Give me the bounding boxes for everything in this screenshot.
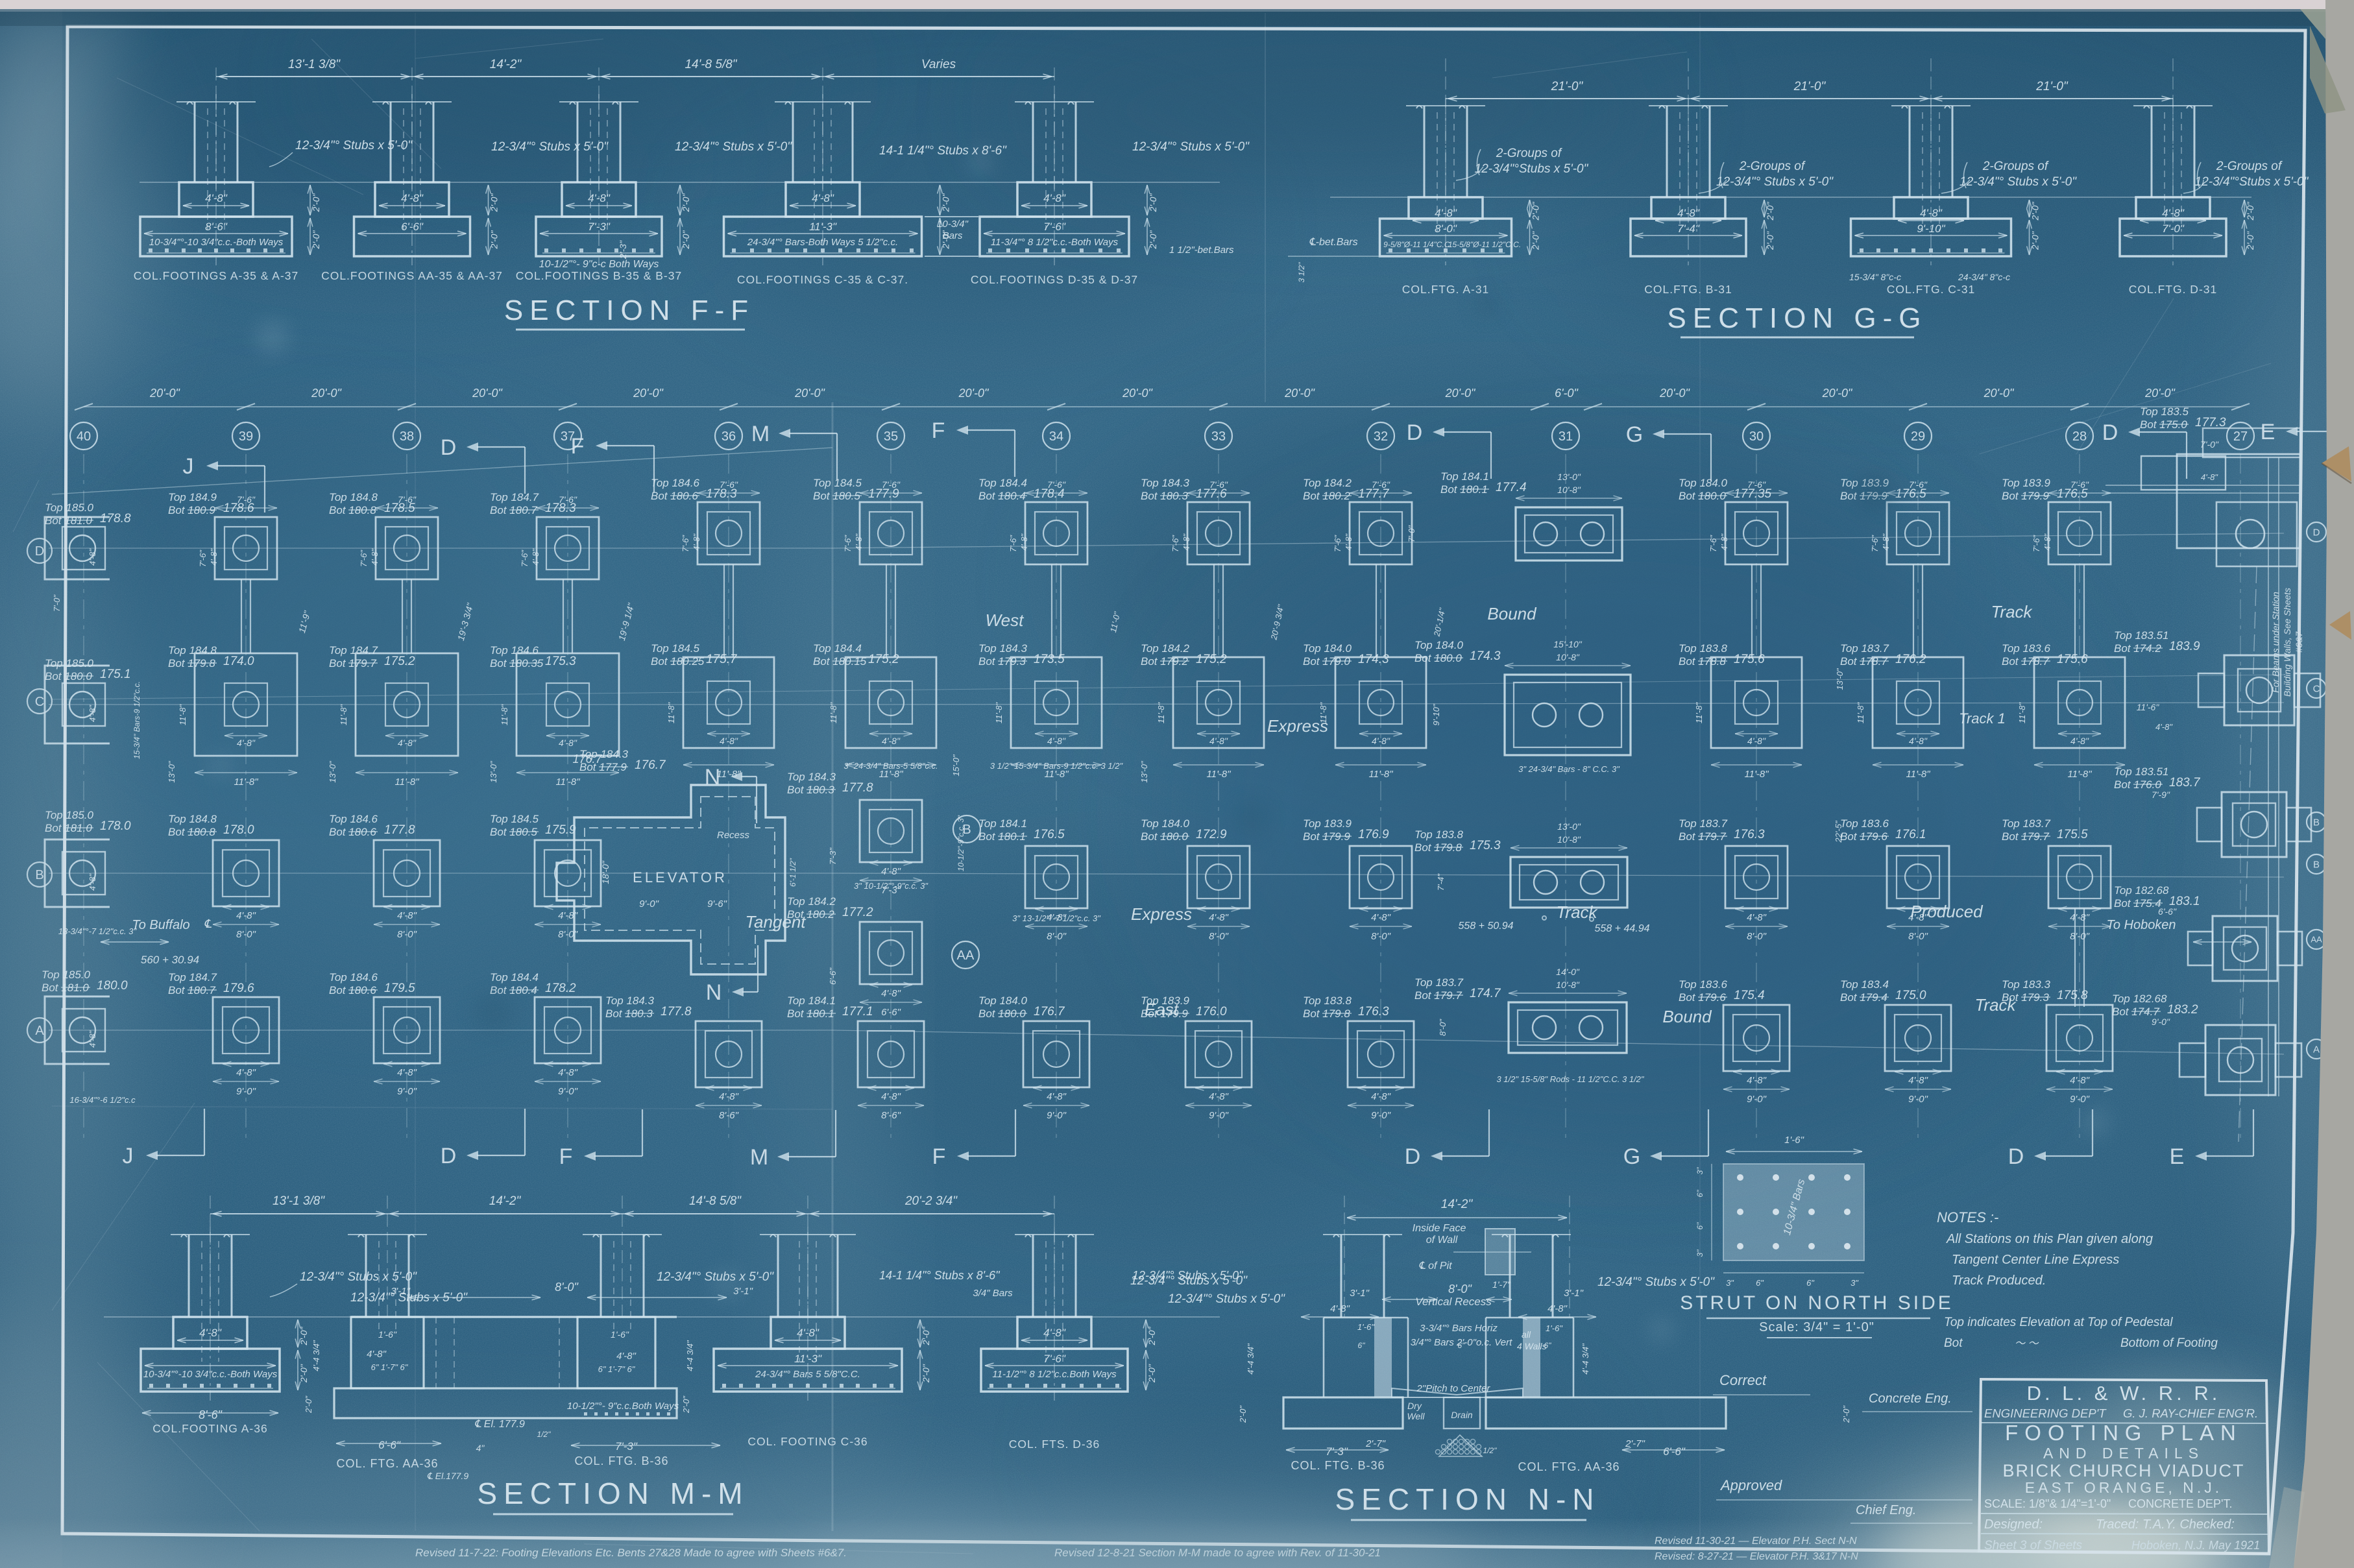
svg-text:F: F	[932, 418, 945, 443]
svg-text:177.35: 177.35	[1734, 487, 1772, 501]
svg-text:28: 28	[2072, 429, 2087, 444]
svg-text:COL.FTG. D-31: COL.FTG. D-31	[2129, 283, 2218, 296]
svg-text:COL.FTG. A-31: COL.FTG. A-31	[1402, 283, 1490, 296]
svg-text:2'-0": 2'-0"	[489, 230, 500, 250]
svg-text:4'-8": 4'-8"	[1371, 1091, 1391, 1102]
svg-text:2'-0": 2'-0"	[304, 1395, 313, 1414]
svg-text:10-1/2"-9"c.c. 3": 10-1/2"-9"c.c. 3"	[956, 815, 965, 871]
svg-text:4 Walls: 4 Walls	[1517, 1341, 1547, 1351]
svg-text:2-Groups of: 2-Groups of	[1496, 147, 1562, 160]
svg-text:Top 183.7: Top 183.7	[1679, 817, 1728, 830]
svg-text:SECTION M-M: SECTION M-M	[477, 1477, 749, 1510]
svg-text:D: D	[441, 1144, 457, 1168]
svg-text:2'-0": 2'-0"	[1147, 1327, 1157, 1346]
svg-text:F: F	[932, 1144, 946, 1169]
svg-text:4'-8": 4'-8"	[1547, 1303, 1568, 1314]
svg-text:8'-0": 8'-0"	[236, 929, 256, 940]
svg-text:2'-0": 2'-0"	[2245, 231, 2255, 250]
svg-text:2-Groups of: 2-Groups of	[2216, 160, 2283, 173]
svg-text:12-3/4"° Stubs x 5'-0": 12-3/4"° Stubs x 5'-0"	[1960, 175, 2077, 189]
svg-text:Well: Well	[1407, 1411, 1426, 1421]
svg-text:176.2: 176.2	[1895, 653, 1926, 666]
svg-text:Top 183.6: Top 183.6	[1840, 817, 1889, 830]
svg-text:SECTION G-G: SECTION G-G	[1668, 302, 1928, 334]
svg-text:4'-8": 4'-8"	[1019, 533, 1029, 551]
svg-text:4'-8": 4'-8"	[1043, 1327, 1066, 1339]
svg-text:12-3/4"°Stubs x 5'-0": 12-3/4"°Stubs x 5'-0"	[1475, 162, 1589, 176]
svg-text:2'-0": 2'-0"	[681, 230, 691, 250]
svg-text:4'-8": 4'-8"	[881, 1091, 901, 1102]
svg-text:Top 183.7: Top 183.7	[1414, 976, 1464, 989]
svg-text:4'-8": 4'-8"	[692, 533, 701, 551]
svg-text:2'-3": 2'-3"	[618, 240, 628, 259]
svg-text:COL.FOOTINGS AA-35 & AA-37: COL.FOOTINGS AA-35 & AA-37	[321, 269, 503, 282]
svg-text:Chief Eng.: Chief Eng.	[1856, 1503, 1916, 1517]
svg-text:4'-8": 4'-8"	[1047, 736, 1066, 746]
svg-text:177.7: 177.7	[1358, 487, 1390, 501]
svg-text:2-Groups of: 2-Groups of	[1739, 160, 1806, 173]
svg-text:32: 32	[1374, 429, 1388, 444]
svg-text:2'-0": 2'-0"	[921, 1364, 931, 1383]
svg-text:Top 184.6: Top 184.6	[329, 813, 378, 825]
svg-text:176.9: 176.9	[1358, 828, 1389, 841]
svg-text:D: D	[1405, 1144, 1421, 1169]
svg-text:4'-8": 4'-8"	[616, 1351, 637, 1362]
svg-text:12-3/4"° Stubs x 5'-0": 12-3/4"° Stubs x 5'-0"	[675, 140, 792, 154]
svg-text:9'-0": 9'-0"	[1747, 1094, 1767, 1105]
svg-text:NOTES :-: NOTES :-	[1937, 1209, 1998, 1225]
svg-text:Top 184.6: Top 184.6	[651, 477, 700, 489]
svg-text:13'-0": 13'-0"	[1557, 821, 1581, 832]
svg-text:Top 183.8: Top 183.8	[1303, 995, 1352, 1007]
svg-text:174.7: 174.7	[1470, 987, 1501, 1000]
svg-text:13'-0": 13'-0"	[167, 760, 176, 783]
svg-text:8'-6": 8'-6"	[881, 1110, 901, 1121]
svg-text:175.2: 175.2	[384, 655, 415, 668]
svg-text:SECTION F-F: SECTION F-F	[504, 295, 755, 326]
svg-text:COL. FOOTING C-36: COL. FOOTING C-36	[747, 1435, 868, 1448]
svg-text:Top 184.5: Top 184.5	[490, 813, 539, 825]
svg-text:Top 184.6: Top 184.6	[490, 644, 539, 657]
svg-text:176.0: 176.0	[1196, 1005, 1227, 1019]
svg-text:N: N	[706, 980, 722, 1005]
svg-text:all: all	[1522, 1329, 1531, 1340]
svg-text:Produced: Produced	[1910, 902, 1984, 921]
svg-text:12-3/4"° Stubs x 5'-0": 12-3/4"° Stubs x 5'-0"	[295, 139, 413, 152]
svg-text:℄: ℄	[204, 917, 212, 930]
svg-text:4'-8": 4'-8"	[588, 192, 611, 204]
svg-text:COL.FTG. B-31: COL.FTG. B-31	[1644, 283, 1732, 296]
svg-text:11'-8": 11'-8"	[1368, 769, 1393, 780]
svg-text:8'-0": 8'-0"	[1448, 1283, 1472, 1296]
svg-text:8'-6": 8'-6"	[205, 221, 228, 233]
svg-text:4'-8": 4'-8"	[719, 1091, 739, 1102]
svg-text:174.3: 174.3	[1358, 653, 1389, 666]
svg-text:179.6: 179.6	[223, 982, 254, 995]
svg-text:4'-4 3/4": 4'-4 3/4"	[311, 1340, 321, 1371]
svg-text:20'-2 3/4": 20'-2 3/4"	[904, 1194, 958, 1208]
svg-text:To Hoboken: To Hoboken	[2106, 918, 2176, 932]
svg-text:24-3/4"° Bars-Both Ways 5 1/2": 24-3/4"° Bars-Both Ways 5 1/2"c.c.	[747, 237, 898, 248]
svg-text:8'-0": 8'-0"	[1908, 931, 1928, 942]
svg-text:38: 38	[400, 429, 414, 444]
svg-text:14'-2": 14'-2"	[490, 58, 522, 71]
svg-text:11'-8": 11'-8"	[1694, 702, 1704, 724]
svg-text:6'-1 1/2": 6'-1 1/2"	[788, 858, 797, 887]
svg-text:11'-3": 11'-3"	[794, 1353, 822, 1365]
svg-text:D: D	[1407, 420, 1423, 445]
svg-text:175.8: 175.8	[2057, 989, 2088, 1002]
svg-text:20'-0": 20'-0"	[1122, 387, 1153, 400]
svg-text:4'-8": 4'-8"	[236, 1067, 256, 1078]
svg-text:6": 6"	[1756, 1278, 1764, 1288]
svg-text:9'-0": 9'-0"	[397, 1086, 417, 1097]
svg-text:8'-0": 8'-0"	[1435, 223, 1457, 235]
svg-text:2'-7": 2'-7"	[1365, 1438, 1386, 1449]
svg-text:6" 1'-7" 6": 6" 1'-7" 6"	[371, 1362, 409, 1372]
svg-text:B: B	[2313, 859, 2320, 870]
svg-text:4'-8": 4'-8"	[2162, 207, 2185, 219]
svg-text:6": 6"	[1695, 1190, 1705, 1198]
svg-text:Top 184.3: Top 184.3	[978, 642, 1028, 655]
svg-text:Top 184.5: Top 184.5	[651, 642, 700, 655]
svg-text:13'-0": 13'-0"	[1139, 760, 1149, 783]
svg-text:ELEVATOR: ELEVATOR	[633, 869, 727, 886]
svg-text:7'-6": 7'-6"	[1171, 535, 1180, 552]
svg-text:14'-2": 14'-2"	[489, 1194, 522, 1208]
svg-text:177.9: 177.9	[868, 487, 899, 501]
svg-text:1/2": 1/2"	[537, 1430, 552, 1439]
svg-text:ENGINEERING DEP'T: ENGINEERING DEP'T	[1984, 1406, 2107, 1420]
svg-text:EAST ORANGE, N.J.: EAST ORANGE, N.J.	[2025, 1479, 2222, 1496]
svg-text:Track: Track	[1974, 995, 2017, 1015]
svg-text:F: F	[571, 434, 585, 459]
svg-text:13'-1 3/8": 13'-1 3/8"	[288, 58, 341, 71]
svg-text:Top 184.8: Top 184.8	[329, 491, 378, 503]
svg-text:8'-0": 8'-0"	[1047, 931, 1067, 942]
svg-text:Bottom of Footing: Bottom of Footing	[2120, 1336, 2218, 1350]
svg-text:3": 3"	[1695, 1167, 1705, 1175]
svg-text:2'-0": 2'-0"	[311, 230, 321, 250]
svg-text:177.8: 177.8	[384, 823, 415, 837]
svg-text:COL.FOOTINGS C-35 & C-37.: COL.FOOTINGS C-35 & C-37.	[737, 273, 908, 286]
svg-text:4'-8": 4'-8"	[199, 1327, 222, 1339]
svg-text:178.5: 178.5	[384, 501, 415, 515]
svg-text:4'-8": 4'-8"	[401, 192, 424, 204]
svg-text:COL.FOOTINGS A-35 & A-37: COL.FOOTINGS A-35 & A-37	[134, 269, 299, 282]
svg-text:Tangent Center Line Express: Tangent Center Line Express	[1952, 1253, 2119, 1267]
svg-text:13'-0": 13'-0"	[489, 760, 498, 783]
svg-text:1/2": 1/2"	[1483, 1446, 1498, 1455]
svg-text:2'-0": 2'-0"	[1148, 193, 1158, 213]
svg-text:183.9: 183.9	[2169, 640, 2200, 653]
svg-text:Top 184.0: Top 184.0	[1303, 642, 1352, 655]
svg-text:B: B	[2313, 817, 2320, 828]
svg-text:4'-8": 4'-8"	[720, 736, 738, 746]
svg-text:178.2: 178.2	[545, 982, 576, 995]
svg-text:176.7: 176.7	[635, 758, 666, 772]
svg-text:4'-8": 4'-8"	[1047, 1091, 1067, 1102]
svg-text:COL.FOOTING A-36: COL.FOOTING A-36	[152, 1422, 267, 1435]
svg-text:11'-8": 11'-8"	[394, 777, 419, 788]
svg-text:9'-10": 9'-10"	[1431, 703, 1441, 726]
svg-text:COL. FTG. AA-36: COL. FTG. AA-36	[1518, 1460, 1620, 1473]
svg-text:2'-0": 2'-0"	[1148, 230, 1158, 250]
svg-text:178.0: 178.0	[100, 819, 131, 833]
svg-text:4'-8": 4'-8"	[1344, 533, 1353, 551]
svg-text:7'-6": 7'-6"	[1008, 535, 1018, 552]
svg-text:Top 183.7: Top 183.7	[2002, 817, 2051, 830]
svg-text:East: East	[1145, 1000, 1180, 1019]
svg-text:4'-8": 4'-8"	[88, 548, 97, 566]
svg-text:G. J. RAY-CHIEF ENG'R.: G. J. RAY-CHIEF ENG'R.	[2123, 1406, 2258, 1420]
svg-text:8'-6": 8'-6"	[199, 1408, 223, 1421]
svg-text:13'-1 3/8": 13'-1 3/8"	[273, 1194, 325, 1208]
svg-text:4'-8": 4'-8"	[237, 738, 256, 748]
svg-text:2'-0": 2'-0"	[681, 1395, 691, 1414]
svg-text:4'-8": 4'-8"	[1908, 1075, 1928, 1086]
svg-text:180.0: 180.0	[97, 979, 128, 993]
svg-text:13'-0": 13'-0"	[328, 760, 337, 783]
svg-text:Top 184.4: Top 184.4	[490, 971, 539, 983]
svg-text:4'-8": 4'-8"	[1677, 207, 1700, 219]
svg-text:12-3/4"° Stubs x 5'-0": 12-3/4"° Stubs x 5'-0"	[300, 1270, 417, 1284]
svg-text:℄ El. 177.9: ℄ El. 177.9	[474, 1419, 525, 1430]
svg-text:21'-0": 21'-0"	[1551, 80, 1584, 93]
svg-text:#6&7: #6&7	[2294, 631, 2304, 653]
svg-text:31: 31	[1559, 429, 1573, 444]
svg-text:M: M	[751, 422, 770, 446]
svg-text:4'-8": 4'-8"	[2155, 722, 2173, 732]
svg-text:Top 183.7: Top 183.7	[1840, 642, 1889, 655]
svg-text:4'-8": 4'-8"	[236, 910, 256, 921]
svg-text:176.5: 176.5	[2057, 487, 2088, 501]
svg-text:9'-0": 9'-0"	[639, 899, 659, 910]
svg-text:COL.FOOTINGS D-35 & D-37: COL.FOOTINGS D-35 & D-37	[971, 273, 1138, 286]
svg-text:175.5: 175.5	[2057, 828, 2088, 841]
svg-text:Vertical Recess: Vertical Recess	[1415, 1296, 1492, 1308]
svg-text:174.0: 174.0	[223, 655, 254, 668]
svg-text:7'-6": 7'-6"	[359, 549, 369, 567]
svg-text:3 1/2": 3 1/2"	[1297, 262, 1306, 283]
svg-text:4'-8": 4'-8"	[1435, 207, 1457, 219]
svg-text:Inside Face: Inside Face	[1413, 1223, 1466, 1234]
svg-text:1'-6": 1'-6"	[1546, 1323, 1563, 1333]
svg-text:10'-8": 10'-8"	[1556, 652, 1580, 662]
svg-text:1'-6": 1'-6"	[1357, 1322, 1375, 1332]
svg-text:Drain: Drain	[1451, 1410, 1473, 1420]
svg-text:Tangent: Tangent	[745, 912, 807, 932]
svg-text:6'-6": 6'-6"	[401, 221, 424, 233]
svg-text:30: 30	[1749, 429, 1764, 444]
svg-text:16-3/4"°-6 1/2"c.c: 16-3/4"°-6 1/2"c.c	[69, 1095, 136, 1105]
svg-text:℄ of Pit: ℄ of Pit	[1418, 1260, 1452, 1272]
svg-text:4'-8": 4'-8"	[854, 533, 864, 551]
svg-text:9'-0": 9'-0"	[236, 1086, 256, 1097]
svg-text:Top 184.3: Top 184.3	[605, 995, 655, 1007]
svg-text:4'-8": 4'-8"	[2043, 533, 2052, 551]
svg-text:2'-0": 2'-0"	[921, 1327, 931, 1346]
svg-text:2'-0": 2'-0"	[1531, 202, 1541, 221]
svg-text:176.7: 176.7	[572, 753, 602, 766]
svg-text:183.7: 183.7	[2169, 776, 2201, 790]
svg-text:4'-8": 4'-8"	[1881, 533, 1891, 551]
svg-text:Top 183.4: Top 183.4	[1840, 978, 1889, 991]
svg-text:Correct: Correct	[1719, 1372, 1767, 1388]
svg-text:177.6: 177.6	[1196, 487, 1227, 501]
svg-text:COL. FTG. B-36: COL. FTG. B-36	[1291, 1459, 1385, 1472]
svg-text:175.6: 175.6	[1734, 653, 1765, 666]
svg-text:558 + 50.94: 558 + 50.94	[1459, 921, 1514, 932]
svg-text:8'-0": 8'-0"	[1438, 1019, 1448, 1036]
svg-text:Top 184.6: Top 184.6	[329, 971, 378, 983]
svg-text:6": 6"	[1544, 1341, 1552, 1350]
svg-text:175.9: 175.9	[545, 823, 576, 837]
svg-text:178.3: 178.3	[545, 501, 576, 515]
svg-text:C: C	[2313, 683, 2320, 694]
svg-text:8'-0": 8'-0"	[1371, 931, 1391, 942]
svg-text:4'-8": 4'-8"	[1371, 912, 1391, 923]
svg-text:39: 39	[239, 429, 253, 444]
svg-text:176.3: 176.3	[1358, 1005, 1389, 1019]
svg-text:4": 4"	[476, 1443, 485, 1453]
svg-text:7'-0": 7'-0"	[2200, 439, 2219, 450]
svg-text:4'-8": 4'-8"	[209, 548, 219, 566]
svg-text:Express: Express	[1267, 716, 1328, 736]
svg-text:Top 184.7: Top 184.7	[168, 971, 217, 983]
svg-text:Express: Express	[1131, 904, 1192, 924]
svg-text:176.5: 176.5	[1895, 487, 1926, 501]
svg-text:177.8: 177.8	[661, 1005, 692, 1019]
svg-text:9'-0": 9'-0"	[1908, 1094, 1928, 1105]
svg-text:Top 183.3: Top 183.3	[2002, 978, 2051, 991]
svg-text:4'-8": 4'-8"	[397, 910, 417, 921]
svg-text:E: E	[2170, 1144, 2185, 1169]
svg-text:7'-9": 7'-9"	[2152, 790, 2170, 800]
svg-text:4'-8": 4'-8"	[1330, 1303, 1350, 1314]
svg-text:11'-8": 11'-8"	[555, 777, 580, 788]
svg-text:Track: Track	[1556, 902, 1598, 922]
svg-text:4'-8": 4'-8"	[398, 738, 417, 748]
svg-text:Track: Track	[1991, 602, 2033, 621]
svg-text:4'-8": 4'-8"	[397, 1067, 417, 1078]
svg-text:Top 184.4: Top 184.4	[978, 477, 1027, 489]
svg-text:4'-8": 4'-8"	[2070, 1075, 2090, 1086]
svg-text:Top 182.68: Top 182.68	[2114, 884, 2169, 897]
svg-text:20'-0": 20'-0"	[1822, 387, 1853, 400]
svg-text:12-3/4"° Stubs x 5'-0": 12-3/4"° Stubs x 5'-0"	[1597, 1275, 1715, 1289]
svg-text:Top 184.2: Top 184.2	[1303, 477, 1352, 489]
svg-text:2'-0": 2'-0"	[2245, 202, 2255, 221]
svg-text:14'-8 5/8": 14'-8 5/8"	[685, 58, 737, 71]
svg-text:7'-6": 7'-6"	[1333, 535, 1342, 552]
svg-text:14-1 1/4"° Stubs x 8'-6": 14-1 1/4"° Stubs x 8'-6"	[879, 1269, 1001, 1282]
svg-text:11'-6": 11'-6"	[2137, 702, 2160, 712]
svg-text:G: G	[1623, 1144, 1640, 1169]
svg-text:15-3/4" Bars-9 1/2"c.c.: 15-3/4" Bars-9 1/2"c.c.	[132, 681, 141, 759]
svg-text:℄-bet.Bars: ℄-bet.Bars	[1309, 237, 1357, 248]
svg-text:4'-8": 4'-8"	[88, 1030, 97, 1048]
svg-text:7'-6": 7'-6"	[843, 535, 853, 552]
svg-text:20'-0": 20'-0"	[149, 387, 180, 400]
svg-text:4'-8": 4'-8"	[812, 192, 834, 204]
svg-text:20'-0": 20'-0"	[2144, 387, 2176, 400]
svg-text:9-5/8"Ø-11 1/4"C.C.: 9-5/8"Ø-11 1/4"C.C.	[1383, 240, 1452, 249]
svg-text:3" 24-3/4" Bars - 8" C.C. 3": 3" 24-3/4" Bars - 8" C.C. 3"	[1518, 764, 1620, 774]
svg-text:20'-0": 20'-0"	[1284, 387, 1315, 400]
svg-text:22'-5": 22'-5"	[1834, 820, 1843, 843]
svg-text:Top 184.9: Top 184.9	[168, 491, 217, 503]
svg-text:3'-1": 3'-1"	[391, 1286, 411, 1297]
svg-text:7'-6": 7'-6"	[681, 535, 690, 552]
svg-text:1 1/2"-bet.Bars: 1 1/2"-bet.Bars	[1169, 245, 1234, 256]
svg-text:6'-6": 6'-6"	[2158, 906, 2177, 917]
svg-text:6": 6"	[1806, 1278, 1815, 1288]
svg-text:20'-0": 20'-0"	[311, 387, 342, 400]
svg-text:8'-0": 8'-0"	[2070, 931, 2090, 942]
svg-text:6'-0": 6'-0"	[1555, 387, 1579, 400]
svg-text:of Wall: of Wall	[1426, 1235, 1458, 1246]
svg-text:G: G	[1626, 422, 1643, 447]
svg-text:15'-0": 15'-0"	[951, 754, 961, 777]
svg-text:Top 184.8: Top 184.8	[168, 813, 217, 825]
svg-text:Top 182.68: Top 182.68	[2112, 993, 2167, 1005]
svg-text:Top 183.9: Top 183.9	[1303, 817, 1352, 830]
svg-text:176.3: 176.3	[1734, 828, 1765, 841]
svg-text:4'-8": 4'-8"	[1209, 1091, 1229, 1102]
svg-text:Top 183.5: Top 183.5	[2140, 405, 2189, 418]
svg-text:Building Walls, See Sheets: Building Walls, See Sheets	[2282, 588, 2292, 697]
svg-text:14'-8 5/8": 14'-8 5/8"	[689, 1194, 742, 1208]
svg-text:20'-0": 20'-0"	[958, 387, 989, 400]
svg-text:11'-8": 11'-8"	[666, 702, 676, 724]
svg-text:Concrete Eng.: Concrete Eng.	[1869, 1392, 1952, 1406]
svg-text:Top 184.0: Top 184.0	[1414, 639, 1464, 651]
svg-text:Top 184.5: Top 184.5	[813, 477, 862, 489]
svg-text:J: J	[183, 454, 194, 479]
svg-text:Top 183.8: Top 183.8	[1679, 642, 1728, 655]
svg-text:7'-6": 7'-6"	[520, 549, 529, 567]
svg-text:8'-0": 8'-0"	[1747, 931, 1767, 942]
svg-text:178.8: 178.8	[100, 512, 131, 525]
svg-text:2"Pitch to Center: 2"Pitch to Center	[1416, 1383, 1491, 1394]
svg-text:178.6: 178.6	[223, 501, 254, 515]
svg-text:Top 184.8: Top 184.8	[168, 644, 217, 657]
svg-text:11'-8": 11'-8"	[994, 702, 1004, 724]
svg-text:4'-8": 4'-8"	[882, 736, 901, 746]
svg-text:4'-8": 4'-8"	[1209, 736, 1228, 746]
svg-text:175.7: 175.7	[706, 653, 738, 666]
svg-text:20'-0": 20'-0"	[472, 387, 503, 400]
svg-text:11'-8": 11'-8"	[234, 777, 258, 788]
svg-text:7'-6": 7'-6"	[1708, 535, 1718, 552]
svg-text:Track 1: Track 1	[1959, 710, 2006, 727]
svg-text:SCALE: 1/8"& 1/4"=1'-0": SCALE: 1/8"& 1/4"=1'-0"	[1984, 1497, 2111, 1510]
svg-text:12-3/4"° Stubs x 5'-0": 12-3/4"° Stubs x 5'-0"	[1716, 175, 1834, 189]
svg-text:COL. FTS. D-36: COL. FTS. D-36	[1009, 1438, 1100, 1451]
svg-text:Bot: Bot	[1944, 1336, 1963, 1350]
svg-text:2'-7": 2'-7"	[1625, 1438, 1645, 1449]
svg-text:AA: AA	[2311, 935, 2322, 945]
svg-text:24-3/4"° Bars 5 5/8"C.C.: 24-3/4"° Bars 5 5/8"C.C.	[755, 1369, 860, 1380]
svg-text:12-3/4"° Stubs x 5'-0": 12-3/4"° Stubs x 5'-0"	[1168, 1292, 1285, 1306]
svg-text:4'-4 3/4": 4'-4 3/4"	[1246, 1343, 1256, 1375]
svg-text:3" 10-1/2"°-9"c.c. 3": 3" 10-1/2"°-9"c.c. 3"	[854, 881, 928, 891]
svg-text:3'-1": 3'-1"	[1564, 1288, 1584, 1299]
svg-text:J: J	[123, 1144, 134, 1168]
svg-text:558 + 44.94: 558 + 44.94	[1595, 923, 1650, 934]
svg-text:13'-0": 13'-0"	[1835, 668, 1845, 690]
